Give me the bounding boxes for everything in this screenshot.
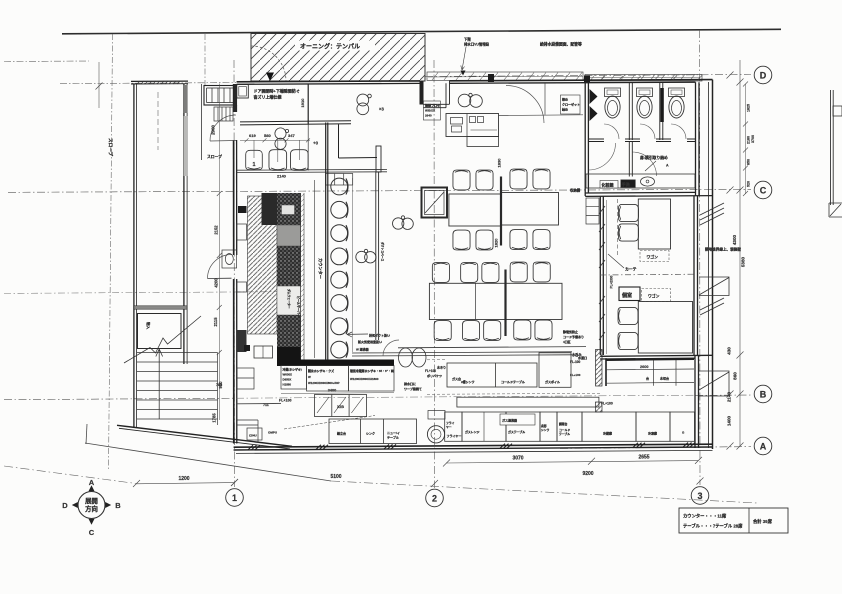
svg-text:水切台: 水切台 xyxy=(660,376,669,381)
svg-text:コード予備あり: コード予備あり xyxy=(563,334,584,339)
svg-text:化粧鏡: 化粧鏡 xyxy=(602,182,614,188)
svg-text:W630X: W630X xyxy=(283,373,293,377)
svg-text:A: A xyxy=(760,442,767,452)
svg-text:W1200XD600X800+50P: W1200XD600X800+50P xyxy=(308,381,340,385)
svg-text:9200: 9200 xyxy=(582,471,593,477)
svg-text:860: 860 xyxy=(733,372,738,380)
svg-text:スロープ: スロープ xyxy=(107,138,114,157)
svg-text:4口区: 4口区 xyxy=(563,339,571,344)
svg-text:5100: 5100 xyxy=(330,474,341,480)
svg-text:シンク: シンク xyxy=(366,431,375,436)
svg-text:ビールサーバー: ビールサーバー xyxy=(297,296,302,317)
svg-text:ガステーブル: ガステーブル xyxy=(508,429,525,434)
svg-text:850: 850 xyxy=(747,159,751,165)
svg-text:オーニング：テンパル: オーニング：テンパル xyxy=(300,43,360,51)
svg-text:シンク: シンク xyxy=(541,428,550,432)
svg-text:テーブル・・・7テーブル 28席: テーブル・・・7テーブル 28席 xyxy=(683,523,743,530)
svg-text:B: B xyxy=(115,501,121,510)
svg-text:W/BOX: W/BOX xyxy=(425,109,435,113)
svg-text:2640: 2640 xyxy=(425,114,432,118)
svg-text:ワゴン: ワゴン xyxy=(648,294,660,299)
svg-text:沓ズリ上端仕様: 沓ズリ上端仕様 xyxy=(253,94,283,100)
svg-text:1910: 1910 xyxy=(300,98,305,108)
svg-text:OMPU: OMPU xyxy=(268,431,277,435)
svg-text:ガスレンジ: ガスレンジ xyxy=(465,429,480,434)
svg-text:FL+100: FL+100 xyxy=(601,402,613,406)
svg-text:カウンター: カウンター xyxy=(317,258,324,279)
svg-text:B: B xyxy=(760,390,767,400)
svg-text:1200: 1200 xyxy=(178,476,189,482)
svg-text:D: D xyxy=(760,71,767,81)
svg-text:1830: 1830 xyxy=(497,158,502,168)
svg-text:展開: 展開 xyxy=(85,496,98,505)
svg-text:X2B: X2B xyxy=(337,405,344,409)
svg-text:ワゴン: ワゴン xyxy=(647,255,659,260)
svg-text:ワープ接続て: ワープ接続て xyxy=(404,386,422,391)
svg-text:3700: 3700 xyxy=(751,135,755,143)
svg-text:掃除プロセ: 掃除プロセ xyxy=(425,103,440,108)
svg-text:手洗: 手洗 xyxy=(622,181,630,187)
svg-text:1785: 1785 xyxy=(212,413,217,423)
svg-text:FL+100: FL+100 xyxy=(279,399,292,403)
svg-text:排水口VU管埋設: 排水口VU管埋設 xyxy=(464,42,490,47)
svg-text:1: 1 xyxy=(253,162,256,168)
svg-text:排気ダクト扱い: 排気ダクト扱い xyxy=(369,333,390,338)
svg-text:2152: 2152 xyxy=(213,225,218,235)
svg-text:スロープ: スロープ xyxy=(207,154,222,159)
svg-text:調理台: 調理台 xyxy=(559,422,568,426)
svg-text:A: A xyxy=(666,164,669,168)
svg-text:+0: +0 xyxy=(313,141,319,146)
svg-text:347: 347 xyxy=(288,133,295,138)
svg-text:方向: 方向 xyxy=(85,504,98,513)
svg-text:製氷ホシザキ・クズ: 製氷ホシザキ・クズ xyxy=(308,368,334,373)
svg-text:C54U: C54U xyxy=(249,434,257,438)
svg-text:水きり: 水きり xyxy=(437,365,446,370)
svg-text:ニュー/イ: ニュー/イ xyxy=(387,431,400,435)
svg-text:コールドテーブル: コールドテーブル xyxy=(501,379,525,384)
svg-text:1: 1 xyxy=(232,493,237,503)
svg-text:2140: 2140 xyxy=(277,174,287,179)
svg-text:A: A xyxy=(89,478,95,487)
svg-text:D650X: D650X xyxy=(283,378,292,382)
svg-text:ヤー: ヤー xyxy=(446,425,452,429)
svg-text:給排水設備図面、配管等: 給排水設備図面、配管等 xyxy=(540,42,582,47)
svg-text:1400: 1400 xyxy=(727,415,732,426)
svg-text:W 湯沸器: W 湯沸器 xyxy=(356,347,370,352)
svg-text:ダクトスペース: ダクトスペース xyxy=(381,242,385,261)
svg-text:収納棚: 収納棚 xyxy=(570,188,581,193)
svg-text:FL-100: FL-100 xyxy=(570,360,581,364)
svg-text:カーテ: カーテ xyxy=(625,267,637,272)
svg-text:下階: 下階 xyxy=(464,37,471,42)
svg-text:2槽シンク: 2槽シンク xyxy=(461,379,475,384)
svg-text:1820: 1820 xyxy=(494,238,499,248)
svg-text:物入: 物入 xyxy=(146,322,151,330)
svg-text:扉:横引取り納め: 扉:横引取り納め xyxy=(639,155,668,160)
svg-text:ダムウェーター: ダムウェーター xyxy=(287,289,291,309)
svg-text:W: W xyxy=(308,375,311,379)
svg-text:組立台: 組立台 xyxy=(337,431,346,436)
svg-text:520: 520 xyxy=(747,181,751,187)
svg-text:ポリバケツ: ポリバケツ xyxy=(427,373,442,378)
svg-text:4300: 4300 xyxy=(732,234,737,245)
svg-text:2600: 2600 xyxy=(640,365,648,369)
svg-text:冷凍庫: 冷凍庫 xyxy=(648,431,657,436)
svg-text:2180: 2180 xyxy=(747,136,751,144)
svg-text:冷蔵(ホシザキ): 冷蔵(ホシザキ) xyxy=(283,367,302,372)
svg-text:2900: 2900 xyxy=(211,125,216,135)
svg-text:3070: 3070 xyxy=(512,456,523,462)
svg-text:台: 台 xyxy=(646,376,649,381)
svg-text:新火気使用室扱い: 新火気使用室扱い xyxy=(358,339,382,344)
svg-text:隣地境界線上、塀擁壁: 隣地境界線上、塀擁壁 xyxy=(705,247,741,252)
svg-text:梁め: 梁め xyxy=(561,97,568,102)
svg-text:ガス湯沸器: ガス湯沸器 xyxy=(502,418,518,423)
svg-text:FL+100: FL+100 xyxy=(570,373,581,377)
svg-text:780: 780 xyxy=(216,383,222,387)
svg-text:納め: 納め xyxy=(562,107,568,112)
svg-text:×3: ×3 xyxy=(379,107,384,112)
svg-text:テーブル: テーブル xyxy=(387,435,399,440)
svg-text:テーブル: テーブル xyxy=(559,432,570,436)
svg-text:H1880: H1880 xyxy=(283,383,292,387)
svg-text:2655: 2655 xyxy=(638,454,649,460)
svg-text:580: 580 xyxy=(264,133,271,138)
svg-text:619: 619 xyxy=(249,133,256,138)
svg-text:クローゼット: クローゼット xyxy=(562,102,580,107)
svg-text:排水口に: 排水口に xyxy=(404,381,416,386)
svg-text:水呑み: 水呑み xyxy=(571,352,582,357)
svg-text:4200: 4200 xyxy=(213,278,218,288)
svg-text:C: C xyxy=(760,186,767,196)
svg-text:C: C xyxy=(89,528,95,537)
svg-text:カウンター・・・11席: カウンター・・・11席 xyxy=(683,513,727,520)
svg-text:2115: 2115 xyxy=(213,317,218,327)
svg-text:ガス台: ガス台 xyxy=(452,376,461,381)
svg-text:PL≈2300: PL≈2300 xyxy=(610,275,614,288)
svg-text:5380: 5380 xyxy=(741,256,746,267)
svg-text:合計 39席: 合計 39席 xyxy=(753,518,773,525)
svg-text:W1200XD800XH1890: W1200XD800XH1890 xyxy=(350,377,379,381)
svg-text:フライヤー: フライヤー xyxy=(447,433,462,438)
svg-text:1825: 1825 xyxy=(747,104,751,112)
svg-text:環境冷蔵庫ホシザキ・65・6"・両: 環境冷蔵庫ホシザキ・65・6"・両 xyxy=(350,368,394,373)
svg-text:ガスボイル: ガスボイル xyxy=(545,379,560,384)
svg-text:D: D xyxy=(62,501,68,510)
svg-text:FL+100: FL+100 xyxy=(425,369,436,373)
svg-text:静電気防止: 静電気防止 xyxy=(563,329,578,334)
svg-text:冷蔵庫: 冷蔵庫 xyxy=(603,431,612,436)
svg-text:2: 2 xyxy=(432,494,437,504)
svg-text:個室: 個室 xyxy=(621,292,632,299)
svg-text:3400: 3400 xyxy=(328,389,336,393)
svg-text:430: 430 xyxy=(727,347,732,355)
svg-text:3: 3 xyxy=(697,491,702,501)
svg-text:ドア開閉時+下端隙間防ぐ: ドア開閉時+下端隙間防ぐ xyxy=(254,88,300,94)
